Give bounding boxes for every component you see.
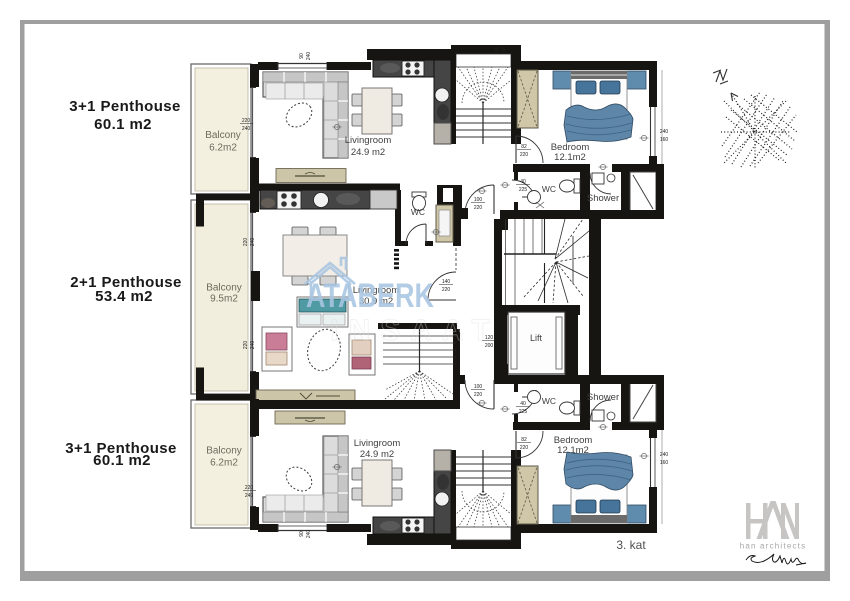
svg-text:160: 160 <box>660 137 669 143</box>
svg-text:WC: WC <box>542 396 556 406</box>
svg-text:220: 220 <box>474 205 483 211</box>
svg-text:60.1 m2: 60.1 m2 <box>93 452 151 469</box>
svg-text:6.2m2: 6.2m2 <box>209 143 237 154</box>
svg-text:9.5m2: 9.5m2 <box>210 294 238 305</box>
svg-text:WC: WC <box>411 207 425 217</box>
svg-text:220: 220 <box>243 238 249 247</box>
svg-text:240: 240 <box>245 493 254 499</box>
svg-text:140: 140 <box>442 279 451 285</box>
svg-text:24.9 m2: 24.9 m2 <box>351 147 385 158</box>
svg-text:Lift: Lift <box>530 333 543 343</box>
svg-text:3+1 Penthouse: 3+1 Penthouse <box>69 98 181 115</box>
svg-text:90: 90 <box>494 47 499 53</box>
svg-text:Balcony: Balcony <box>206 283 242 294</box>
svg-text:100: 100 <box>474 384 483 390</box>
svg-text:60.1 m2: 60.1 m2 <box>94 116 152 133</box>
svg-text:220: 220 <box>474 392 483 398</box>
svg-text:Livingroom: Livingroom <box>354 438 401 449</box>
svg-text:240: 240 <box>660 129 669 135</box>
svg-text:225: 225 <box>519 187 528 193</box>
svg-text:han architects: han architects <box>740 542 807 551</box>
svg-text:82: 82 <box>521 144 527 150</box>
svg-text:220: 220 <box>520 152 529 158</box>
svg-text:90: 90 <box>299 531 305 537</box>
svg-text:82: 82 <box>521 437 527 443</box>
svg-text:ATABERK: ATABERK <box>306 277 434 315</box>
svg-text:6.2m2: 6.2m2 <box>210 458 238 469</box>
svg-text:12.1m2: 12.1m2 <box>554 152 586 163</box>
svg-text:Shower: Shower <box>587 193 619 204</box>
svg-text:WC: WC <box>542 184 556 194</box>
svg-text:90: 90 <box>299 53 305 59</box>
svg-text:240: 240 <box>250 238 256 247</box>
svg-text:Balcony: Balcony <box>206 446 242 457</box>
svg-text:3. kat: 3. kat <box>616 538 646 552</box>
svg-text:Balcony: Balcony <box>205 130 241 141</box>
svg-text:240: 240 <box>242 126 251 132</box>
svg-text:220: 220 <box>520 445 529 451</box>
svg-text:160: 160 <box>660 460 669 466</box>
svg-text:220: 220 <box>245 485 254 491</box>
svg-text:Shower: Shower <box>587 392 619 403</box>
svg-text:40: 40 <box>520 179 526 185</box>
svg-text:100: 100 <box>474 197 483 203</box>
svg-text:220: 220 <box>243 341 249 350</box>
svg-text:240: 240 <box>306 530 312 539</box>
svg-text:240: 240 <box>306 52 312 61</box>
svg-text:Livingroom: Livingroom <box>345 135 392 146</box>
svg-text:240: 240 <box>250 341 256 350</box>
svg-text:220: 220 <box>442 287 451 293</box>
svg-text:12.1m2: 12.1m2 <box>557 445 589 456</box>
svg-text:240: 240 <box>660 452 669 458</box>
svg-text:53.4 m2: 53.4 m2 <box>95 288 153 305</box>
svg-text:220: 220 <box>242 118 251 124</box>
svg-text:40: 40 <box>501 47 506 53</box>
svg-text:40: 40 <box>520 401 526 407</box>
svg-text:24.9 m2: 24.9 m2 <box>360 449 394 460</box>
svg-text:INSAAT: INSAAT <box>330 314 499 347</box>
